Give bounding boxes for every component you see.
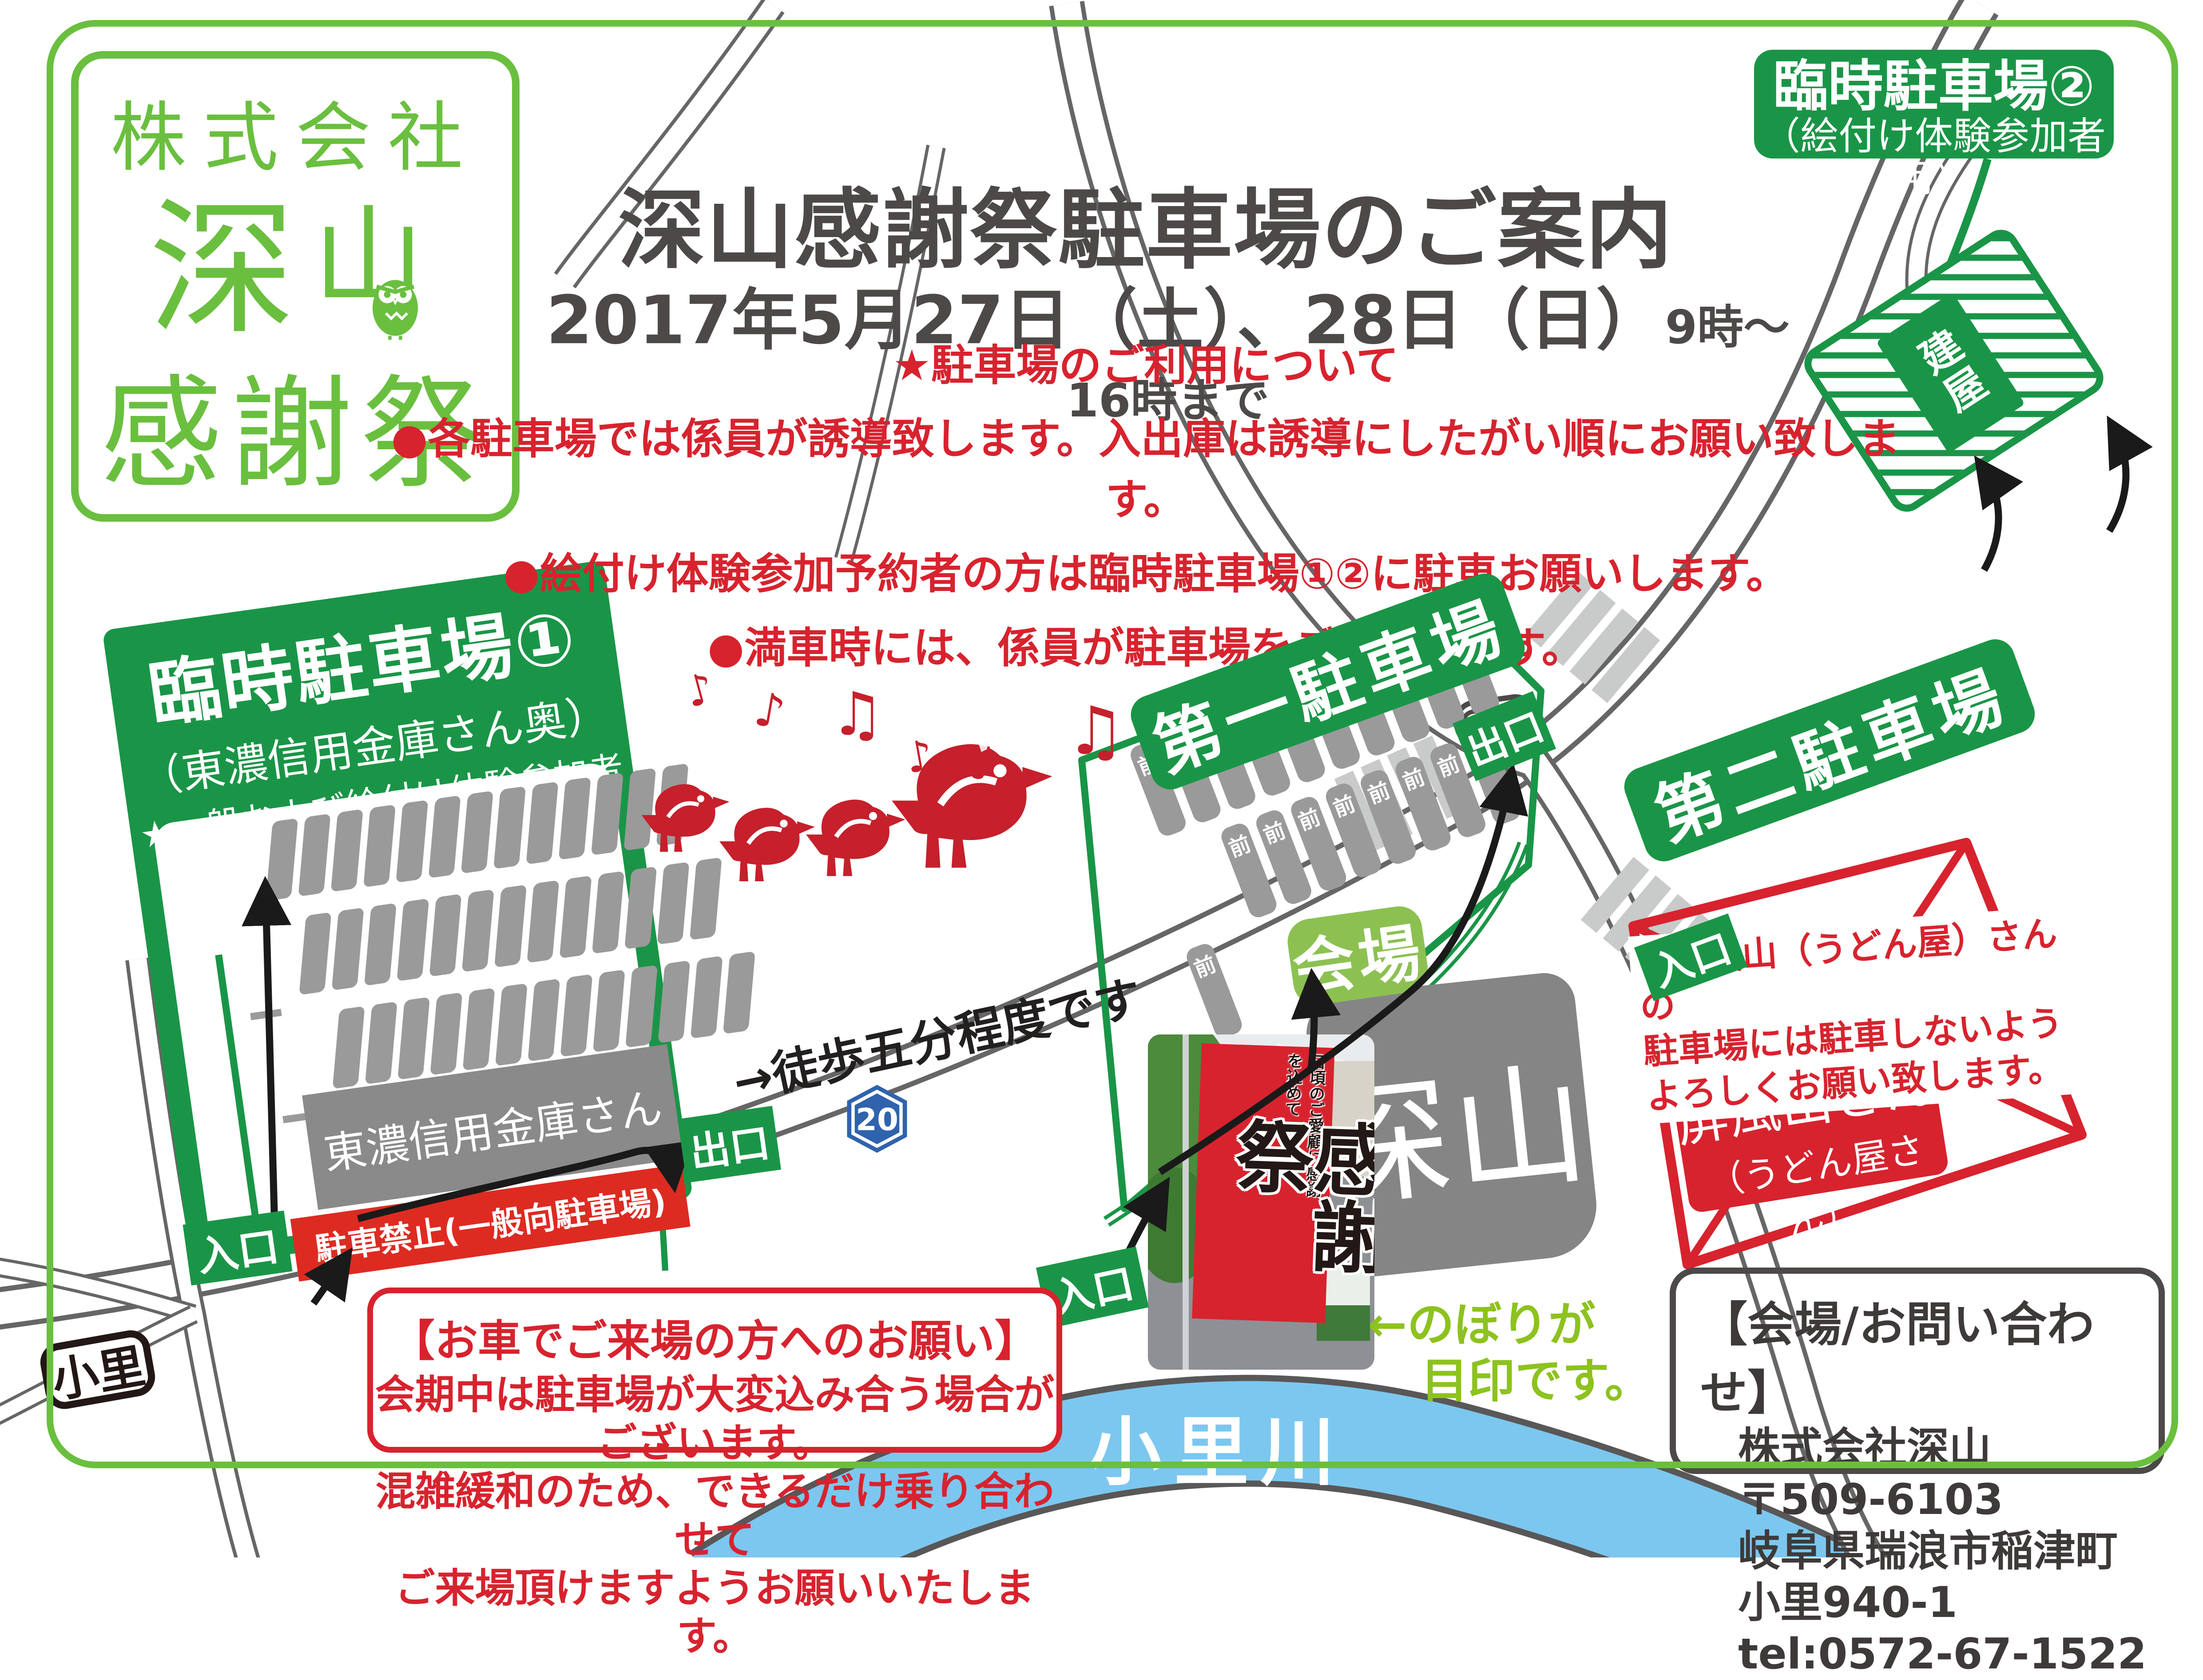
stall-front-label: 前 xyxy=(1359,772,1397,811)
request-box: 【お車でご来場の方へのお願い】 会期中は駐車場が大変込み合う場合がございます。 … xyxy=(367,1288,1062,1453)
request-line: 会期中は駐車場が大変込み合う場合がございます。 xyxy=(373,1371,1056,1468)
parking-notices: ★駐車場のご利用について ●各駐車場では係員が誘導致します。入出庫は誘導にしたが… xyxy=(355,331,1936,688)
nobori-banner-main-text: 感謝祭 xyxy=(1223,1115,1374,1325)
music-note: ♫ xyxy=(1066,693,1125,770)
logo-company-text: 株式会社 xyxy=(79,76,512,186)
stall-front-label: 前 xyxy=(1186,945,1223,984)
contact-postal: 〒509-6103 xyxy=(1700,1474,2159,1526)
parking-stall xyxy=(560,974,593,1057)
parking-stall xyxy=(266,818,298,901)
parking-stall xyxy=(333,1006,365,1089)
parking-stall xyxy=(591,773,623,856)
parking-stall xyxy=(592,871,624,954)
nobori-note: ←のぼりが 目印です。 xyxy=(1368,1296,1679,1409)
temp-lot2-subtitle: （絵付け体験参加者用） xyxy=(1754,115,2114,199)
parking-stall xyxy=(495,983,528,1066)
parking-stall xyxy=(625,965,658,1048)
parking-stall xyxy=(299,912,331,995)
parking-stall xyxy=(527,880,559,963)
parking-stall xyxy=(593,969,625,1052)
parking-stall xyxy=(723,951,755,1034)
route-20-badge: 20 xyxy=(844,1083,910,1154)
stall-front-label: 前 xyxy=(1255,812,1293,851)
banner-pole xyxy=(1183,1034,1189,1370)
venue-badge: 会場 xyxy=(1285,903,1431,1008)
logo-name-main: 深 xyxy=(149,186,295,354)
stall-front-label: 前 xyxy=(1290,798,1328,837)
parking-stall xyxy=(332,907,364,991)
nobori-photo: 日頃のご愛顧に感謝を込めて 感謝祭 xyxy=(1148,1034,1374,1370)
stall-front-label: 前 xyxy=(1220,825,1258,864)
request-line: 混雑緩和のため、できるだけ乗り合わせて xyxy=(373,1468,1056,1565)
temp-lot2-title: 臨時駐車場② xyxy=(1754,58,2114,115)
contact-address: 岐阜県瑞浪市稲津町小里940-1 xyxy=(1700,1526,2159,1629)
temp-lot1-exit-badge: 出口 xyxy=(678,1106,781,1183)
request-title: 【お車でご来場の方へのお願い】 xyxy=(373,1306,1056,1368)
notice-item: ●各駐車場では係員が誘導致します。入出庫は誘導にしたがい順にお願い致します。 xyxy=(355,405,1936,527)
parking-stall xyxy=(463,988,495,1071)
parking-stall xyxy=(462,889,494,972)
parking-stall xyxy=(364,903,397,986)
notice-item: ●絵付け体験参加予約者の方は臨時駐車場①②に駐車お願いします。 xyxy=(355,540,1936,601)
parking-stall xyxy=(429,795,461,878)
parking-stall xyxy=(429,894,462,977)
request-line: ご来場頂けますようお願いいたします。 xyxy=(373,1565,1056,1661)
parking-stall xyxy=(397,898,429,981)
parking-stall xyxy=(397,997,430,1080)
contact-title: 【会場/お問い合わせ】 xyxy=(1700,1286,2159,1423)
parking-stall xyxy=(494,884,527,967)
parking-stall xyxy=(365,1002,397,1085)
parking-stall xyxy=(658,960,690,1043)
nobori-banner: 日頃のご愛顧に感謝を込めて 感謝祭 xyxy=(1192,1043,1334,1323)
nobori-note-line1: ←のぼりが xyxy=(1368,1296,1679,1353)
parking-stall xyxy=(559,777,591,860)
parking-stall xyxy=(691,956,723,1039)
temp-lot2-sign: 臨時駐車場② （絵付け体験参加者用） xyxy=(1754,50,2114,158)
river-label: 小里川 xyxy=(1088,1392,1399,1500)
parking-stall xyxy=(560,876,592,959)
parking-stall xyxy=(396,800,428,883)
parking-stall xyxy=(331,809,363,892)
owl-icon xyxy=(362,265,429,341)
contact-tel: tel:0572-67-1522 xyxy=(1700,1629,2159,1680)
stall-front-label: 前 xyxy=(1325,785,1362,824)
route-number: 20 xyxy=(856,1102,898,1138)
notice-item: ●満車時には、係員が駐車場をご案内します。 xyxy=(355,614,1936,675)
parking-stall xyxy=(528,979,560,1062)
parking-stall xyxy=(430,992,462,1075)
nobori-note-line2: 目印です。 xyxy=(1368,1353,1679,1409)
parking-stall xyxy=(298,813,331,896)
parking-stall xyxy=(493,786,526,869)
stall-front-label: 前 xyxy=(1429,745,1467,784)
notice-heading: ★駐車場のご利用について xyxy=(355,331,1936,392)
parking-stall xyxy=(526,781,558,864)
stall-front-label: 前 xyxy=(1394,758,1432,797)
music-note: ♫ xyxy=(830,679,884,749)
contact-company: 株式会社深山 xyxy=(1700,1423,2159,1474)
parking-stall xyxy=(363,804,396,888)
parking-stall xyxy=(461,791,493,874)
contact-box: 【会場/お問い合わせ】 株式会社深山 〒509-6103 岐阜県瑞浪市稲津町小里… xyxy=(1670,1268,2165,1474)
